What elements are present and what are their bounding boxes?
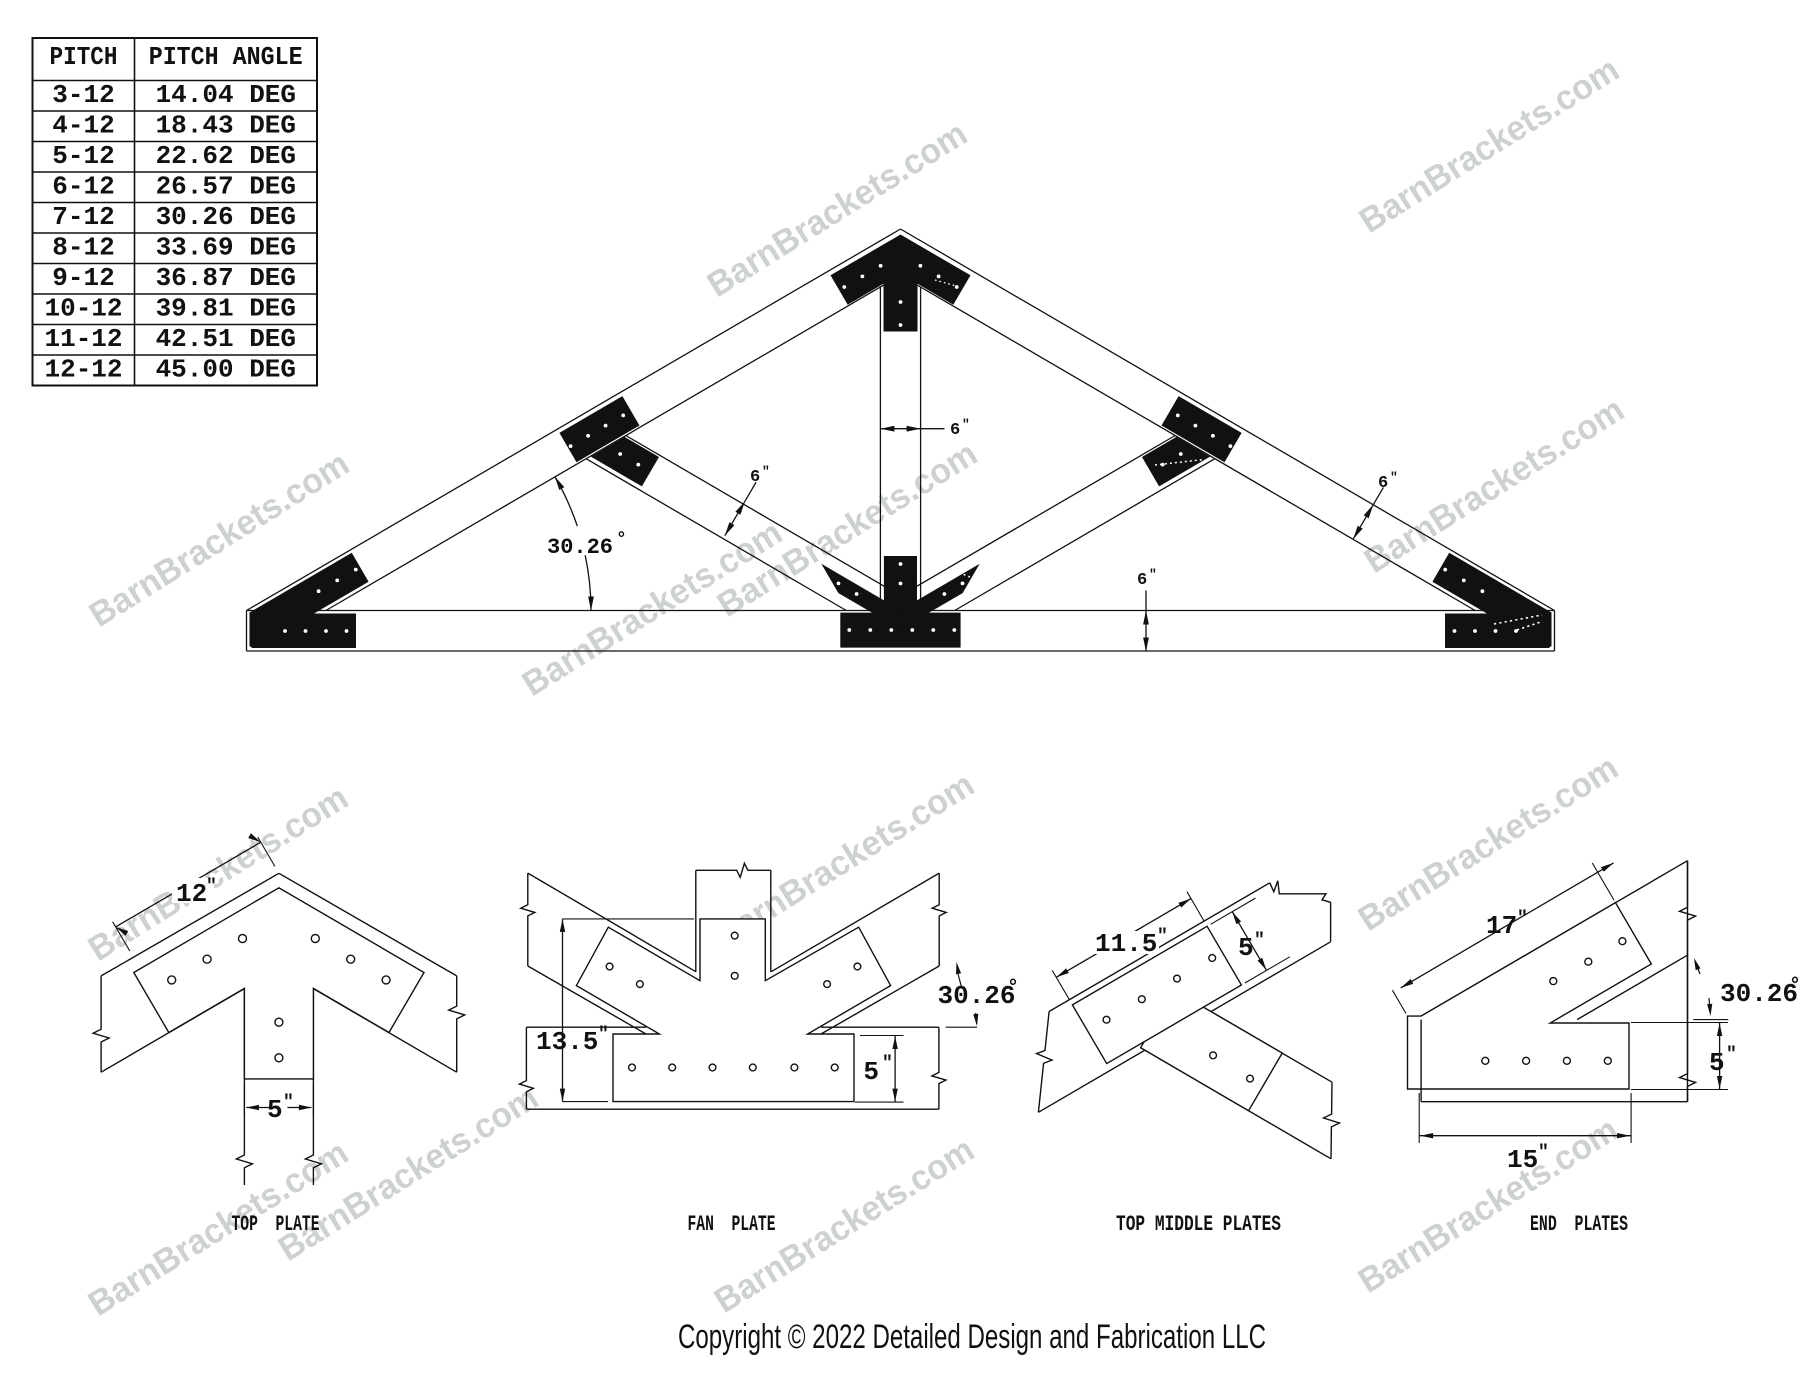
svg-text:30.26: 30.26 <box>938 981 1016 1011</box>
svg-text:END PLATES: END PLATES <box>1530 1212 1628 1237</box>
svg-text:36.87 DEG: 36.87 DEG <box>156 263 296 293</box>
svg-text:10-12: 10-12 <box>44 294 122 324</box>
svg-text:4-12: 4-12 <box>52 111 114 141</box>
svg-text:″: ″ <box>1390 470 1398 485</box>
svg-text:26.57 DEG: 26.57 DEG <box>156 172 296 202</box>
svg-text:″: ″ <box>1157 927 1168 947</box>
svg-text:12: 12 <box>176 879 207 909</box>
svg-text:22.62 DEG: 22.62 DEG <box>156 141 296 171</box>
svg-text:18.43 DEG: 18.43 DEG <box>156 111 296 141</box>
svg-text:5: 5 <box>1238 933 1254 963</box>
svg-text:°: ° <box>616 530 627 550</box>
svg-text:″: ″ <box>1254 931 1265 951</box>
svg-text:6-12: 6-12 <box>52 172 114 202</box>
svg-text:6: 6 <box>950 421 960 440</box>
svg-text:″: ″ <box>1149 567 1157 582</box>
svg-text:12-12: 12-12 <box>44 355 122 385</box>
svg-text:″: ″ <box>1538 1143 1549 1163</box>
svg-text:30.26: 30.26 <box>1720 979 1798 1009</box>
svg-text:PITCH: PITCH <box>50 42 118 72</box>
svg-text:15: 15 <box>1507 1145 1538 1175</box>
svg-text:11-12: 11-12 <box>44 324 122 354</box>
svg-text:7-12: 7-12 <box>52 202 114 232</box>
svg-text:5: 5 <box>267 1095 283 1125</box>
svg-text:42.51 DEG: 42.51 DEG <box>156 324 296 354</box>
svg-text:TOP MIDDLE PLATES: TOP MIDDLE PLATES <box>1116 1212 1281 1237</box>
svg-text:PITCH ANGLE: PITCH ANGLE <box>149 42 303 72</box>
svg-text:5-12: 5-12 <box>52 141 114 171</box>
svg-text:5: 5 <box>1709 1048 1725 1078</box>
svg-text:30.26: 30.26 <box>547 535 613 560</box>
svg-text:″: ″ <box>598 1025 609 1045</box>
svg-text:5: 5 <box>863 1057 879 1087</box>
svg-text:″: ″ <box>962 417 970 432</box>
svg-text:6: 6 <box>750 468 760 487</box>
svg-text:11.5: 11.5 <box>1095 929 1157 959</box>
svg-text:17: 17 <box>1486 911 1517 941</box>
svg-text:33.69 DEG: 33.69 DEG <box>156 233 296 263</box>
svg-text:45.00 DEG: 45.00 DEG <box>156 355 296 385</box>
svg-text:°: ° <box>1007 977 1019 1000</box>
svg-text:″: ″ <box>762 464 770 479</box>
svg-text:30.26 DEG: 30.26 DEG <box>156 202 296 232</box>
svg-text:6: 6 <box>1378 474 1388 493</box>
svg-text:″: ″ <box>1517 909 1528 929</box>
svg-text:°: ° <box>1789 975 1800 998</box>
svg-text:39.81 DEG: 39.81 DEG <box>156 294 296 324</box>
svg-text:″: ″ <box>1726 1045 1737 1065</box>
svg-text:6: 6 <box>1137 571 1147 590</box>
svg-text:″: ″ <box>206 877 217 897</box>
svg-text:″: ″ <box>882 1054 893 1074</box>
svg-text:14.04 DEG: 14.04 DEG <box>156 80 296 110</box>
svg-text:3-12: 3-12 <box>52 80 114 110</box>
svg-text:13.5: 13.5 <box>536 1027 598 1057</box>
svg-text:9-12: 9-12 <box>52 263 114 293</box>
svg-text:8-12: 8-12 <box>52 233 114 263</box>
svg-text:″: ″ <box>283 1093 294 1113</box>
svg-text:FAN PLATE: FAN PLATE <box>688 1212 776 1237</box>
svg-text:TOP PLATE: TOP PLATE <box>232 1212 320 1237</box>
svg-text:Copyright © 2022 Detailed Desi: Copyright © 2022 Detailed Design and Fab… <box>678 1318 1266 1356</box>
